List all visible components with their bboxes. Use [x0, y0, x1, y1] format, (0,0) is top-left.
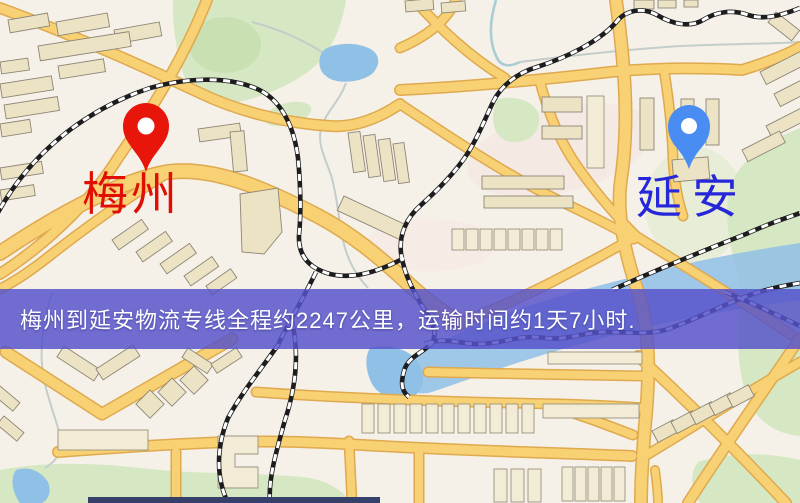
bottom-edge-strip: [88, 497, 380, 503]
destination-city-label: 延安: [636, 175, 748, 221]
map-canvas[interactable]: [0, 0, 800, 503]
route-info-banner: 梅州到延安物流专线全程约2247公里，运输时间约1天7小时.: [0, 289, 800, 349]
map-screenshot: 梅州 延安 梅州到延安物流专线全程约2247公里，运输时间约1天7小时.: [0, 0, 800, 503]
origin-city-label: 梅州: [82, 172, 180, 218]
route-info-text: 梅州到延安物流专线全程约2247公里，运输时间约1天7小时.: [20, 303, 636, 335]
